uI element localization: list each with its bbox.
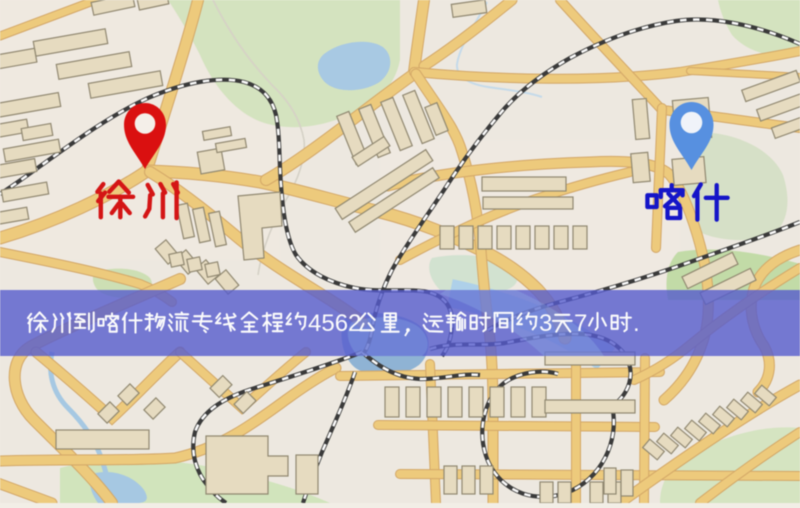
- svg-text:.: .: [633, 310, 640, 337]
- svg-text:3: 3: [539, 310, 552, 337]
- svg-text:4562: 4562: [308, 310, 361, 337]
- svg-text:7: 7: [574, 310, 587, 337]
